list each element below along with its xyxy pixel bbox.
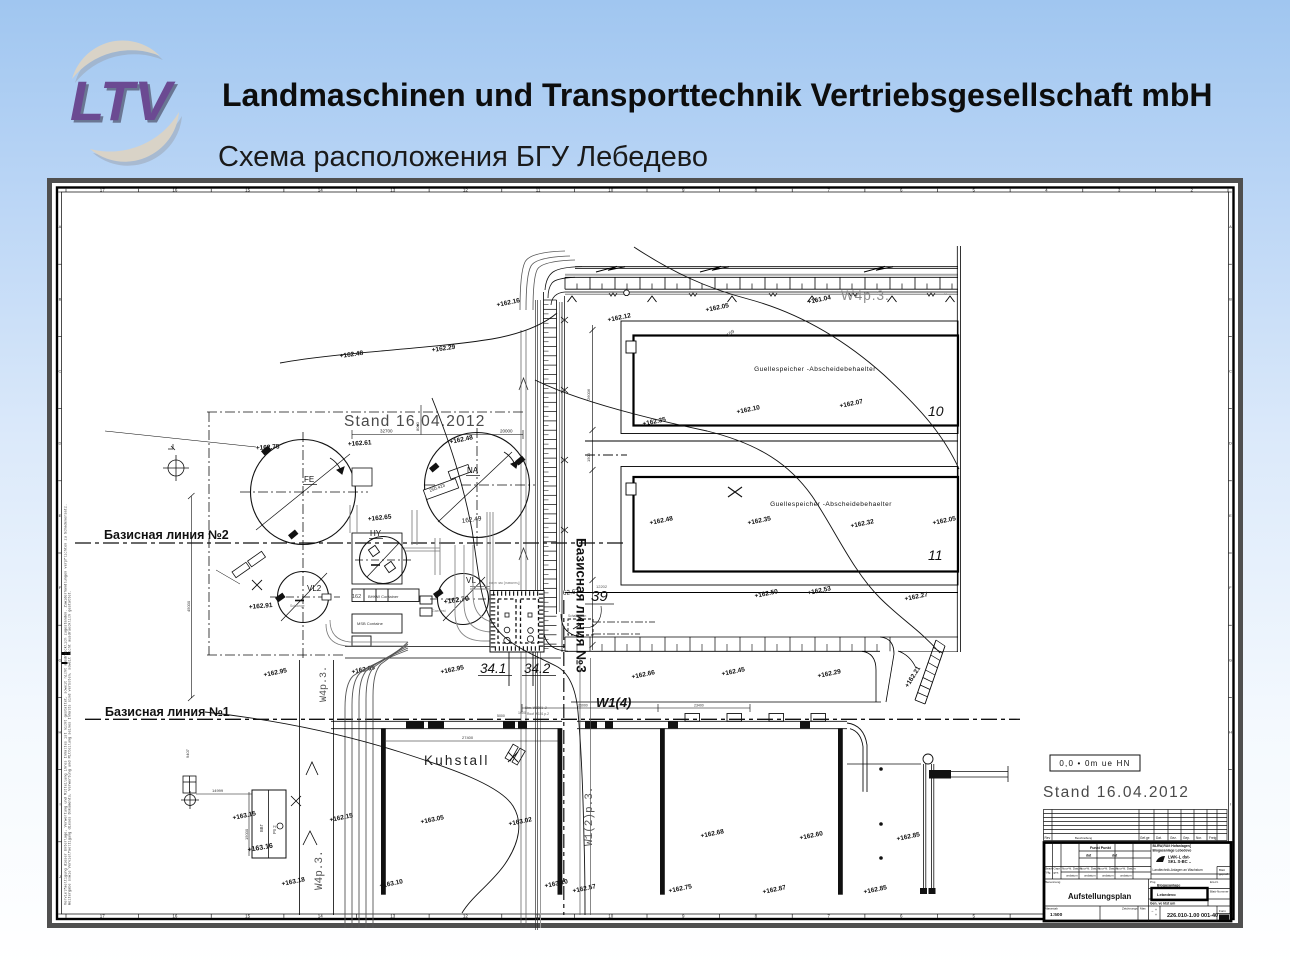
svg-text:E: E — [59, 513, 62, 518]
svg-text:23400: 23400 — [694, 704, 704, 708]
svg-text:Базисная линия №2: Базисная линия №2 — [104, 528, 229, 542]
svg-text:9407: 9407 — [185, 748, 190, 758]
svg-text:32700: 32700 — [380, 429, 393, 434]
svg-text:I: I — [59, 802, 60, 807]
svg-text:gez.: gez. — [1054, 871, 1060, 875]
svg-text:Proj.: Proj. — [1150, 880, 1156, 884]
svg-text:Базисная линия №3: Базисная линия №3 — [574, 538, 589, 673]
svg-text:Freig: Freig — [1209, 836, 1216, 840]
svg-text:Biogasanlage Lebedevo: Biogasanlage Lebedevo — [1153, 849, 1192, 853]
svg-text:34.1: 34.1 — [480, 661, 506, 676]
svg-text:14: 14 — [318, 914, 324, 919]
svg-text:Landmaschinen und Transporttec: Landmaschinen und Transporttechnik Vertr… — [222, 77, 1212, 113]
svg-text:Landtechnik-Anlagen an Wachst: Landtechnik-Anlagen an Wachstum — [1153, 868, 1204, 872]
svg-text:E: E — [1229, 513, 1232, 518]
svg-text:dat: dat — [1086, 854, 1092, 858]
svg-text:NA: NA — [467, 466, 479, 475]
svg-text:16: 16 — [172, 187, 178, 192]
svg-text:Rev: Rev — [1045, 836, 1051, 840]
svg-text:Схема расположения БГУ Лебедев: Схема расположения БГУ Лебедево — [218, 141, 708, 173]
svg-text:C: C — [59, 369, 62, 374]
svg-text:Stand 16.04.2012: Stand 16.04.2012 — [1043, 784, 1189, 801]
svg-text:W4p.3.: W4p.3. — [841, 288, 890, 303]
svg-text:Massstab: Massstab — [1045, 907, 1058, 911]
svg-text:12: 12 — [463, 187, 469, 192]
svg-text:Beschreibung: Beschreibung — [1075, 836, 1093, 840]
svg-text:H: H — [59, 730, 62, 735]
svg-text:13: 13 — [390, 914, 396, 919]
svg-text:+: + — [1155, 908, 1157, 912]
svg-text:G: G — [1229, 657, 1232, 662]
svg-text:VL2: VL2 — [307, 584, 322, 593]
svg-text:Gef.ge: Gef.ge — [1140, 836, 1150, 840]
svg-text:26006: 26006 — [586, 388, 591, 400]
svg-text:39: 39 — [591, 588, 608, 605]
svg-text:Dat.: Dat. — [1156, 836, 1162, 840]
svg-text:gepruft: gepruft — [1219, 872, 1229, 876]
svg-text:C: C — [1229, 369, 1232, 374]
svg-text:Nor.: Nor. — [1196, 836, 1202, 840]
svg-text:A: A — [59, 224, 62, 229]
svg-text:G: G — [58, 657, 61, 662]
svg-text:LTV: LTV — [70, 69, 176, 132]
svg-text:5000: 5000 — [497, 714, 505, 718]
svg-text:16: 16 — [172, 914, 178, 919]
svg-text:W4p.3.: W4p.3. — [319, 666, 330, 702]
svg-text:1500: 1500 — [586, 452, 591, 462]
svg-text:12: 12 — [463, 914, 469, 919]
svg-text:Ers-N.: Ers-N. — [1210, 880, 1219, 884]
svg-text:14: 14 — [318, 187, 324, 192]
svg-text:11: 11 — [928, 547, 943, 563]
svg-text:Weitergabe sowie Vervielfaelti: Weitergabe sowie Vervielfaeltigung diese… — [68, 590, 73, 905]
svg-text:26000: 26000 — [578, 704, 588, 708]
svg-text:Lebedevo: Lebedevo — [1157, 892, 1176, 897]
svg-text:226.010-1.00 001-40: 226.010-1.00 001-40 — [1167, 913, 1218, 919]
svg-text:SKL S-BC ..: SKL S-BC .. — [1168, 859, 1191, 864]
svg-text:27400: 27400 — [462, 735, 474, 740]
svg-text:ˇ: ˇ — [944, 292, 947, 302]
svg-text:undatum: undatum — [1120, 874, 1132, 878]
svg-text:Schlange: Schlange — [290, 604, 305, 608]
svg-text:HY: HY — [370, 529, 382, 538]
svg-text:dat: dat — [1112, 854, 1118, 858]
svg-text:Aufstellungsplan: Aufstellungsplan — [1068, 892, 1131, 901]
svg-text:undatum: undatum — [1102, 874, 1114, 878]
svg-text:Zeichnungs: Zeichnungs — [1122, 907, 1138, 911]
svg-text:ВВГ: ВВГ — [259, 823, 264, 832]
svg-text:D: D — [59, 441, 62, 446]
svg-text:BLRW,RU/t Hofanlagen[: BLRW,RU/t Hofanlagen[ — [1153, 844, 1192, 848]
svg-text:undatum: undatum — [1084, 874, 1096, 878]
svg-text:14999: 14999 — [212, 788, 224, 793]
svg-text:Schaltkasten: Schaltkasten — [568, 614, 586, 618]
svg-text:H: H — [1229, 730, 1232, 735]
svg-text:B: B — [1229, 296, 1232, 301]
svg-text:8000: 8000 — [415, 421, 420, 431]
svg-text:10: 10 — [928, 403, 944, 419]
svg-text:Базисная линия №1: Базисная линия №1 — [105, 705, 230, 719]
svg-text:Funkt Punkt: Funkt Punkt — [1090, 846, 1112, 850]
svg-text:+: + — [1155, 913, 1157, 917]
svg-text:VL: VL — [466, 576, 476, 585]
svg-text:17: 17 — [100, 914, 106, 919]
svg-text:162: 162 — [352, 594, 361, 600]
svg-text:D: D — [1229, 441, 1232, 446]
svg-text:/Vfg.: /Vfg. — [1045, 871, 1051, 875]
svg-text:Gez.: Gez. — [1170, 836, 1177, 840]
svg-text:Guellespeicher -Abscheidebeha: Guellespeicher -Abscheidebehaelter — [754, 366, 876, 373]
svg-text:Guellespeicher -Abscheidebeha: Guellespeicher -Abscheidebehaelter — [770, 501, 892, 508]
svg-text:J: J — [59, 874, 61, 879]
svg-text:Blatt-Nummer: Blatt-Nummer — [1210, 890, 1229, 894]
svg-text:Gen. ve ktst um: Gen. ve ktst um — [1150, 902, 1175, 906]
svg-text:45000: 45000 — [186, 600, 191, 612]
svg-text:13: 13 — [390, 187, 396, 192]
svg-text:W1(2)p.3.: W1(2)p.3. — [584, 787, 596, 846]
svg-text:Gaerrest: Gaerrest — [432, 609, 446, 613]
svg-text:MSB Containe: MSB Containe — [357, 621, 384, 626]
svg-text:B: B — [59, 296, 62, 301]
svg-text:W4p.3.: W4p.3. — [314, 850, 326, 890]
svg-text:15: 15 — [245, 914, 251, 919]
svg-text:17: 17 — [100, 187, 106, 192]
svg-text:Nou-%. Datum: Nou-%. Datum — [1116, 867, 1136, 871]
svg-text:undatum: undatum — [1066, 874, 1078, 878]
svg-text:Form: Form — [1219, 909, 1227, 913]
svg-text:20000: 20000 — [500, 429, 513, 434]
svg-text:Kuhstall: Kuhstall — [424, 753, 490, 768]
svg-text:15: 15 — [245, 187, 251, 192]
svg-text:10: 10 — [608, 187, 614, 192]
svg-text:Mas: Mas — [1140, 907, 1146, 911]
svg-text:15000: 15000 — [244, 828, 249, 840]
svg-text:→: → — [1150, 908, 1154, 913]
svg-text:Рп 2: Рп 2 — [272, 825, 277, 834]
svg-text:Gep.: Gep. — [1183, 836, 1190, 840]
svg-text:1:500: 1:500 — [1050, 912, 1063, 918]
svg-text:10: 10 — [608, 914, 614, 919]
svg-text:парн час [навалтц]: парн час [навалтц] — [489, 581, 519, 585]
svg-text:A: A — [1229, 224, 1232, 229]
svg-text:FE: FE — [304, 475, 314, 484]
svg-text:I: I — [1230, 802, 1231, 807]
svg-text:Roof W101 p.2: Roof W101 p.2 — [527, 712, 549, 716]
svg-text:BHKW Container: BHKW Container — [368, 594, 399, 599]
svg-text:0,0 • 0m ue HN: 0,0 • 0m ue HN — [1059, 759, 1130, 768]
svg-text:34.2: 34.2 — [524, 661, 551, 676]
svg-text:Benennung: Benennung — [1045, 880, 1061, 884]
svg-text:11: 11 — [536, 187, 541, 192]
